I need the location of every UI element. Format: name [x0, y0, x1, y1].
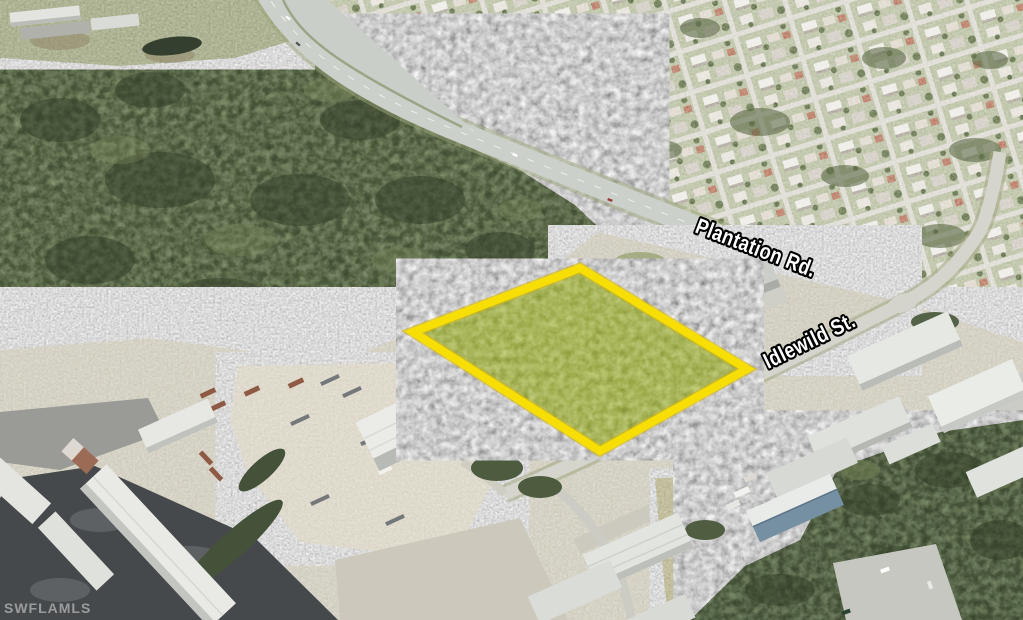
aerial-photo-canvas: Plantation Rd. Idlewild St. SWFLAMLS: [0, 0, 1023, 620]
mls-watermark: SWFLAMLS: [4, 600, 91, 616]
aerial-photo: Plantation Rd. Idlewild St. SWFLAMLS: [0, 0, 1023, 620]
